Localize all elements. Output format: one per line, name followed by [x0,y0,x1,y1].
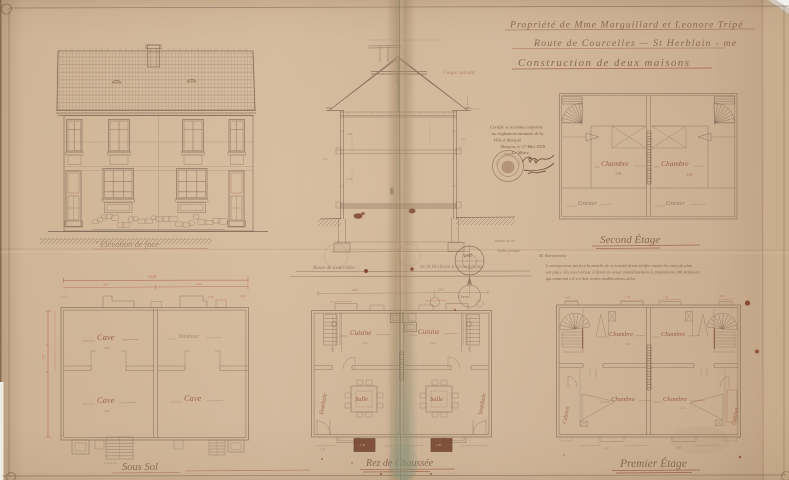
svg-text:Nord: Nord [461,254,472,259]
svg-text:Premier Étage: Premier Étage [619,456,687,470]
svg-text:Chambre: Chambre [661,159,689,168]
svg-text:0.90: 0.90 [565,296,571,300]
svg-text:Chambre: Chambre [601,159,629,168]
svg-text:Chambre: Chambre [661,331,685,338]
svg-text:Tambour: Tambour [178,334,200,340]
svg-text:2.8: 2.8 [461,137,466,141]
svg-text:Cuisine: Cuisine [350,329,371,337]
svg-text:Jardin potager: Jardin potager [497,248,521,253]
svg-text:Cave: Cave [97,332,115,342]
svg-text:7.35: 7.35 [41,354,45,360]
svg-text:3.05: 3.05 [625,342,631,346]
svg-text:Le Maire: Le Maire [511,150,529,155]
svg-text:3.00: 3.00 [686,173,692,177]
svg-text:10.30: 10.30 [148,275,156,279]
svg-text:Cuisine: Cuisine [418,328,439,336]
svg-text:3.90: 3.90 [104,409,110,413]
svg-text:1.30: 1.30 [436,444,441,447]
svg-text:1.00: 1.00 [61,295,67,299]
svg-text:14 marches: 14 marches [104,461,119,465]
svg-text:0.90: 0.90 [719,294,725,298]
svg-text:1.30: 1.30 [663,295,669,299]
svg-text:3.44: 3.44 [430,341,436,345]
svg-text:Coupe suivant: Coupe suivant [443,70,475,76]
svg-text:1.30: 1.30 [625,295,631,299]
svg-text:Chambre: Chambre [663,396,687,403]
svg-text:1.50: 1.50 [680,406,686,410]
svg-text:Élévation de face: Élévation de face [99,239,159,249]
svg-text:niveau du sol: niveau du sol [495,239,515,243]
svg-text:4.05: 4.05 [196,282,202,286]
svg-text:1.30: 1.30 [360,444,365,447]
svg-text:Route de Courcelles — St: Route de Courcelles — St Herblain - me [533,38,737,49]
svg-text:2.6: 2.6 [323,157,328,161]
svg-text:4.05: 4.05 [103,283,109,287]
svg-text:2.85: 2.85 [438,288,444,292]
svg-text:L entrepreneur qui fera la mar: L entrepreneur qui fera la marche de ce … [545,263,692,268]
svg-text:Cave: Cave [97,395,115,405]
svg-text:Sous Sol: Sous Sol [122,462,158,473]
svg-text:M. Entrepreneur: M. Entrepreneur [538,253,567,258]
svg-text:Salle: Salle [430,396,443,403]
svg-text:Cave: Cave [184,393,202,403]
svg-text:Propriété de Mme Marguillar: Propriété de Mme Marguillard et Leonore … [509,20,743,31]
svg-text:Second Étage: Second Étage [600,234,660,246]
svg-text:VILLE: VILLE [504,152,513,156]
svg-text:Grenier: Grenier [578,201,597,207]
svg-text:2.85: 2.85 [352,288,358,292]
svg-text:Chambre: Chambre [609,331,633,338]
svg-text:Certifié et reconnu conforme: Certifié et reconnu conforme [490,125,543,130]
svg-text:1.10: 1.10 [320,447,326,451]
svg-text:Salle: Salle [355,396,368,403]
svg-text:Grenier: Grenier [666,201,685,207]
svg-text:2.90: 2.90 [346,177,352,181]
svg-text:au règlement sanitaire de la: au règlement sanitaire de la [492,131,544,136]
svg-text:3.00: 3.00 [615,172,621,176]
svg-text:2.60: 2.60 [104,346,110,350]
svg-text:2.80: 2.80 [346,132,352,136]
svg-text:Construction de deux maison: Construction de deux maisons [518,57,690,69]
svg-text:Ville d Alençon: Ville d Alençon [494,138,523,143]
svg-text:Chambre: Chambre [611,396,635,403]
svg-text:1.00: 1.00 [208,295,214,299]
svg-text:Citerne: Citerne [458,294,470,299]
svg-text:3.44: 3.44 [362,341,368,345]
svg-text:0.90: 0.90 [240,294,246,298]
svg-text:1.80: 1.80 [604,446,610,450]
